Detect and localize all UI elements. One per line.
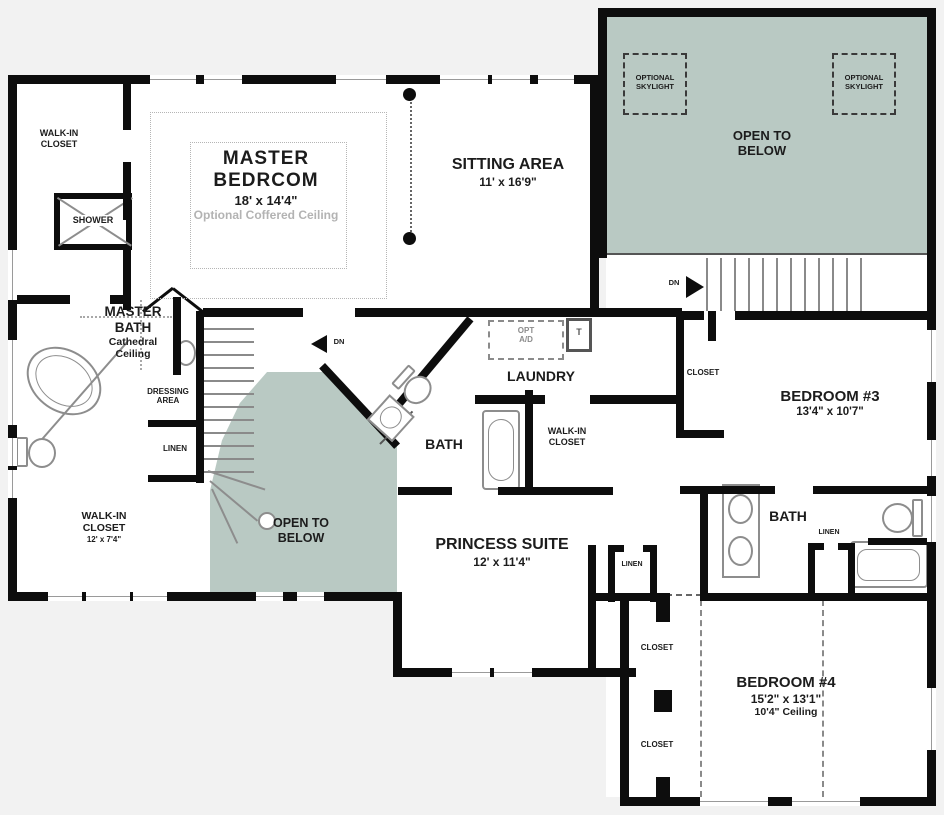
wall — [848, 543, 855, 600]
label-opt-ad: OPTA/D — [518, 326, 534, 345]
window — [927, 688, 936, 750]
window — [8, 470, 17, 498]
wall — [398, 487, 452, 495]
room-label-sitting-area: SITTING AREA 11' x 16'9" — [452, 156, 564, 189]
window — [256, 592, 283, 601]
room-label-walk-in-closet-princess: WALK-INCLOSET — [548, 426, 587, 447]
label-closet: CLOSET — [641, 740, 673, 749]
window — [204, 75, 242, 84]
label-laundry-tub: T — [576, 327, 582, 338]
stairs-icon — [706, 258, 872, 311]
wall — [588, 545, 596, 670]
label-open-to-below-mid: OPEN TOBELOW — [273, 516, 329, 546]
label-dressing-area: DRESSINGAREA — [147, 387, 189, 406]
wall — [676, 311, 704, 320]
column-icon — [403, 232, 416, 245]
wall — [8, 75, 17, 601]
window — [440, 75, 488, 84]
wall — [676, 430, 724, 438]
wall — [676, 311, 684, 438]
wall — [420, 308, 682, 317]
label-linen: LINEN — [819, 529, 840, 537]
window — [792, 797, 860, 806]
wall — [868, 538, 928, 545]
window — [927, 330, 936, 382]
toilet-icon — [912, 499, 923, 537]
wall — [173, 297, 181, 375]
wall — [620, 797, 936, 806]
label-linen: LINEN — [163, 444, 187, 453]
wall — [608, 545, 624, 552]
wall — [620, 600, 629, 806]
wall — [808, 543, 815, 600]
wall — [808, 543, 824, 550]
stairs-top-divider — [606, 253, 927, 255]
window — [86, 592, 130, 601]
room-label-bath-right: BATH — [769, 508, 807, 525]
wall — [498, 487, 613, 495]
wall — [643, 545, 657, 552]
column-icon — [403, 88, 416, 101]
wall — [656, 600, 670, 622]
wall — [203, 308, 303, 317]
label-closet: CLOSET — [687, 368, 719, 377]
fixture-label-shower: SHOWER — [71, 215, 116, 226]
room-label-bath-mid: BATH — [425, 436, 463, 453]
room-label-laundry: LAUNDRY — [507, 368, 575, 385]
wall — [123, 290, 131, 310]
label-linen: LINEN — [622, 561, 643, 569]
label-open-to-below-top: OPEN TOBELOW — [733, 128, 791, 159]
down-arrow-icon — [311, 335, 327, 353]
room-label-walk-in-closet-tl: WALK-INCLOSET — [40, 128, 79, 149]
window — [297, 592, 324, 601]
door-dashed — [666, 594, 702, 596]
floor-plan: WALK-INCLOSET SHOWER MASTER BEDRCOM 18' … — [0, 0, 944, 815]
window — [8, 340, 17, 425]
wall — [838, 543, 855, 550]
room-label-princess-suite: PRINCESS SUITE 12' x 11'4" — [435, 536, 568, 569]
window — [8, 250, 17, 300]
wall — [700, 593, 935, 601]
window — [700, 797, 768, 806]
wall — [598, 8, 607, 258]
wall — [393, 592, 402, 677]
wall — [196, 311, 204, 483]
label-dn: DN — [669, 279, 680, 288]
wall — [813, 486, 935, 494]
wall — [148, 420, 200, 427]
wall — [700, 486, 708, 600]
window — [8, 438, 17, 466]
window — [150, 75, 196, 84]
wall — [598, 8, 936, 17]
wall — [927, 8, 936, 806]
window — [927, 496, 936, 542]
room-label-walk-in-closet-bl: WALK-IN CLOSET 12' x 7'4" — [82, 510, 127, 544]
label-optional-skylight: OPTIONALSKYLIGHT — [636, 74, 675, 92]
room-label-bedroom4: BEDROOM #4 15'2" x 13'1" 10'4" Ceiling — [736, 674, 835, 718]
label-dn: DN — [334, 338, 345, 347]
window — [48, 592, 82, 601]
wall — [590, 395, 676, 404]
wall — [735, 311, 935, 320]
wall — [680, 486, 775, 494]
bathtub-rim — [488, 419, 514, 481]
wall — [656, 777, 670, 797]
wall — [708, 311, 716, 341]
toilet-icon — [882, 503, 913, 533]
wall — [475, 395, 545, 404]
stairs-icon — [204, 315, 254, 483]
wall — [148, 475, 200, 482]
wall — [525, 390, 533, 490]
window — [927, 440, 936, 476]
room-label-master-bath: MASTER BATH Cathedral Ceiling — [105, 304, 162, 361]
window — [492, 75, 530, 84]
wall — [123, 162, 131, 220]
toilet-icon — [16, 437, 28, 467]
label-closet: CLOSET — [641, 643, 673, 652]
room-label-bedroom3: BEDROOM #3 13'4" x 10'7" — [780, 388, 879, 419]
sink-icon — [728, 494, 753, 524]
sink-icon — [728, 536, 753, 566]
column-line — [410, 102, 412, 236]
wall — [123, 84, 131, 130]
wall — [590, 75, 599, 316]
wall — [355, 308, 420, 317]
window — [336, 75, 386, 84]
ceiling-dashed — [700, 600, 702, 797]
window — [494, 668, 532, 677]
toilet-icon — [28, 438, 56, 468]
window — [452, 668, 490, 677]
wall — [8, 295, 70, 304]
window — [133, 592, 167, 601]
wall — [654, 690, 672, 712]
label-optional-skylight: OPTIONALSKYLIGHT — [845, 74, 884, 92]
room-label-master-bedroom: MASTER BEDRCOM 18' x 14'4" Optional Coff… — [194, 148, 339, 222]
down-arrow-icon — [686, 276, 704, 298]
bathtub-rim — [857, 549, 920, 581]
window — [538, 75, 574, 84]
